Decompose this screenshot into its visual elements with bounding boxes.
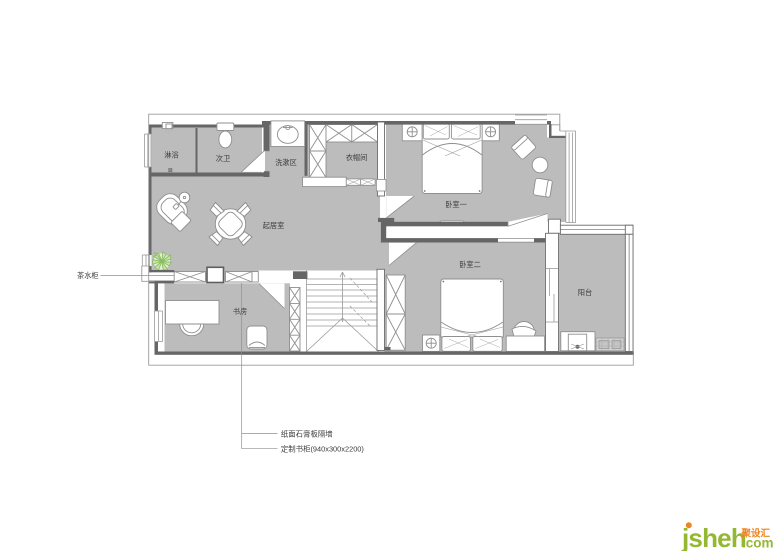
svg-text:卧室一: 卧室一 (445, 200, 467, 209)
svg-text:衣帽间: 衣帽间 (346, 153, 368, 162)
svg-text:次卫: 次卫 (216, 154, 230, 163)
svg-text:书房: 书房 (233, 307, 247, 316)
svg-text:纸面石膏板隔墙: 纸面石膏板隔墙 (281, 429, 333, 438)
svg-text:聚设汇: 聚设汇 (741, 528, 771, 540)
svg-text:淋浴: 淋浴 (164, 151, 178, 160)
svg-text:卧室二: 卧室二 (459, 260, 481, 269)
svg-text:起居室: 起居室 (263, 221, 285, 230)
svg-text:阳台: 阳台 (578, 288, 592, 297)
svg-text:洗漱区: 洗漱区 (275, 158, 297, 167)
svg-text:定制书柜(940x300x2200): 定制书柜(940x300x2200) (281, 444, 364, 453)
svg-text:茶水柜: 茶水柜 (77, 271, 99, 280)
